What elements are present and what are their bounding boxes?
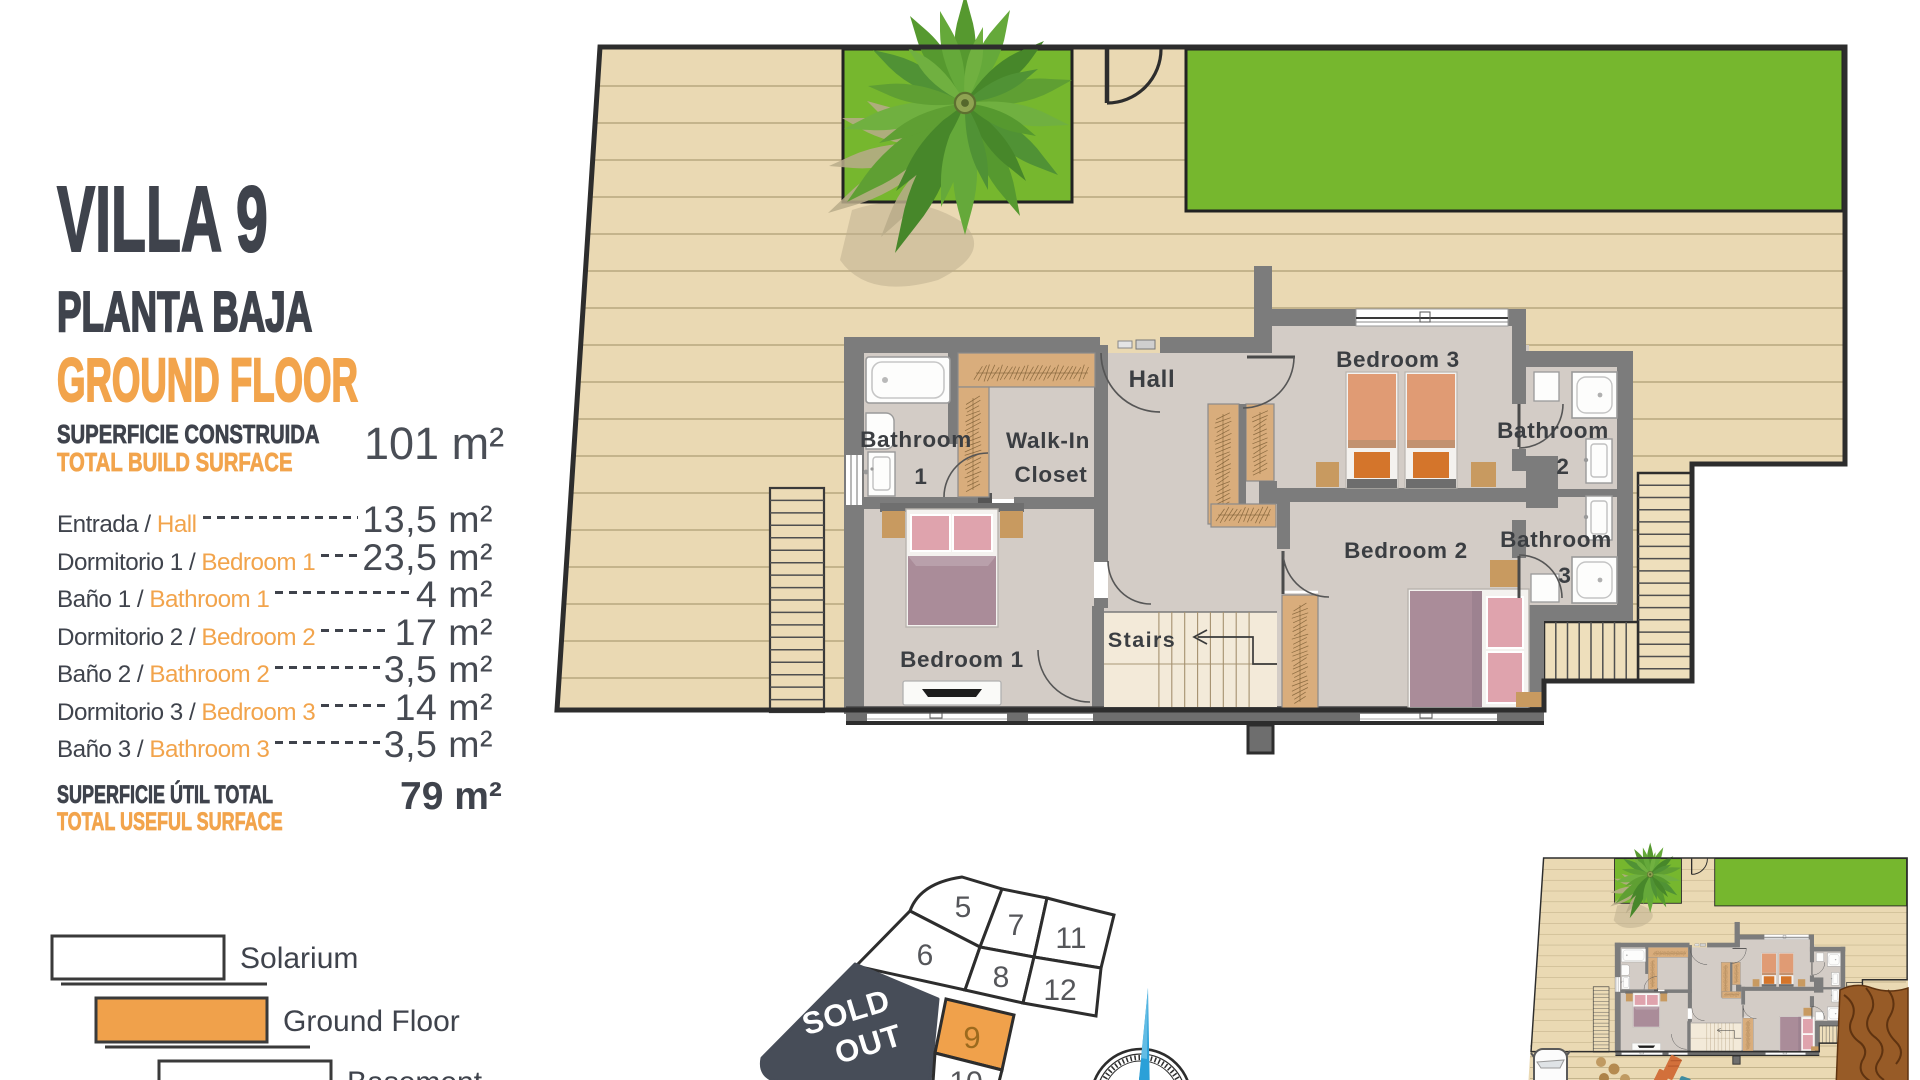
svg-text:7: 7 xyxy=(1008,909,1025,942)
svg-text:Bathroom: Bathroom xyxy=(860,427,972,452)
svg-text:1: 1 xyxy=(914,464,927,489)
svg-text:Stairs: Stairs xyxy=(1108,628,1176,652)
svg-text:8: 8 xyxy=(993,961,1010,994)
svg-text:Bedroom 3: Bedroom 3 xyxy=(1336,347,1460,372)
svg-text:Hall: Hall xyxy=(1129,366,1176,393)
svg-text:11: 11 xyxy=(1055,922,1086,955)
svg-text:Bedroom 1: Bedroom 1 xyxy=(900,647,1024,672)
svg-text:3: 3 xyxy=(1558,563,1571,588)
svg-text:Basement: Basement xyxy=(347,1066,483,1080)
svg-text:Walk-In: Walk-In xyxy=(1006,428,1090,453)
svg-text:9: 9 xyxy=(963,1020,980,1055)
svg-text:6: 6 xyxy=(917,939,934,972)
svg-text:5: 5 xyxy=(955,891,972,924)
svg-text:10: 10 xyxy=(949,1066,982,1080)
svg-text:Bathroom: Bathroom xyxy=(1500,527,1612,552)
svg-text:Bathroom: Bathroom xyxy=(1497,418,1609,443)
svg-text:12: 12 xyxy=(1043,974,1076,1007)
svg-text:2: 2 xyxy=(1556,454,1569,479)
svg-text:Solarium: Solarium xyxy=(240,942,358,975)
svg-text:Ground Floor: Ground Floor xyxy=(283,1005,460,1038)
svg-text:Bedroom 2: Bedroom 2 xyxy=(1344,538,1468,563)
svg-text:Closet: Closet xyxy=(1015,462,1088,487)
